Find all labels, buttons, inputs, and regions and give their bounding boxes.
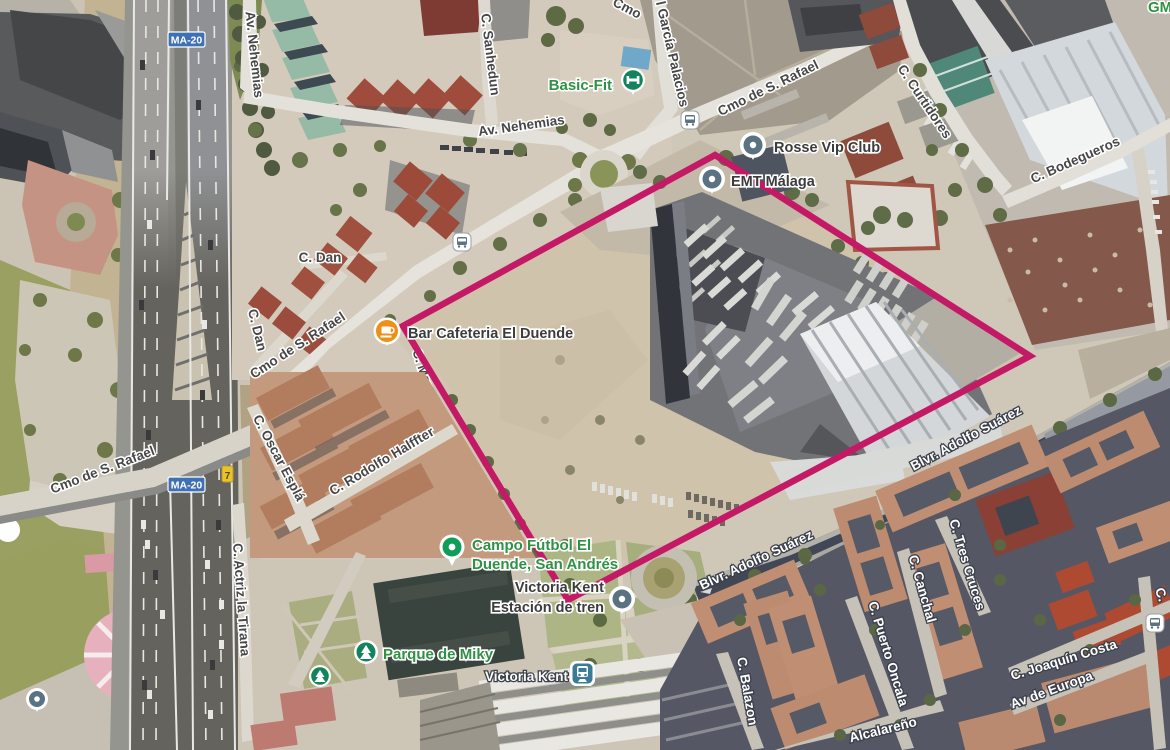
svg-text:Victoria Kent: Victoria Kent — [515, 580, 604, 596]
svg-text:Duende, San Andrés: Duende, San Andrés — [472, 556, 618, 573]
svg-text:MA-20: MA-20 — [171, 35, 203, 47]
svg-text:Basic-Fit: Basic-Fit — [549, 77, 612, 94]
svg-text:Estación de tren: Estación de tren — [491, 600, 604, 616]
svg-text:EMT Málaga: EMT Málaga — [731, 174, 816, 190]
svg-text:Victoria Kent: Victoria Kent — [485, 669, 569, 684]
svg-text:C. Dan: C. Dan — [299, 250, 342, 265]
svg-text:GM: GM — [1148, 0, 1170, 16]
svg-text:7: 7 — [225, 471, 231, 482]
svg-text:Rosse Vip Club: Rosse Vip Club — [774, 140, 880, 156]
svg-text:Bar Cafeteria El Duende: Bar Cafeteria El Duende — [408, 326, 573, 342]
svg-text:Parque de Miky: Parque de Miky — [383, 646, 494, 663]
svg-text:MA-20: MA-20 — [171, 480, 203, 492]
svg-text:Campo Fútbol El: Campo Fútbol El — [472, 537, 591, 554]
